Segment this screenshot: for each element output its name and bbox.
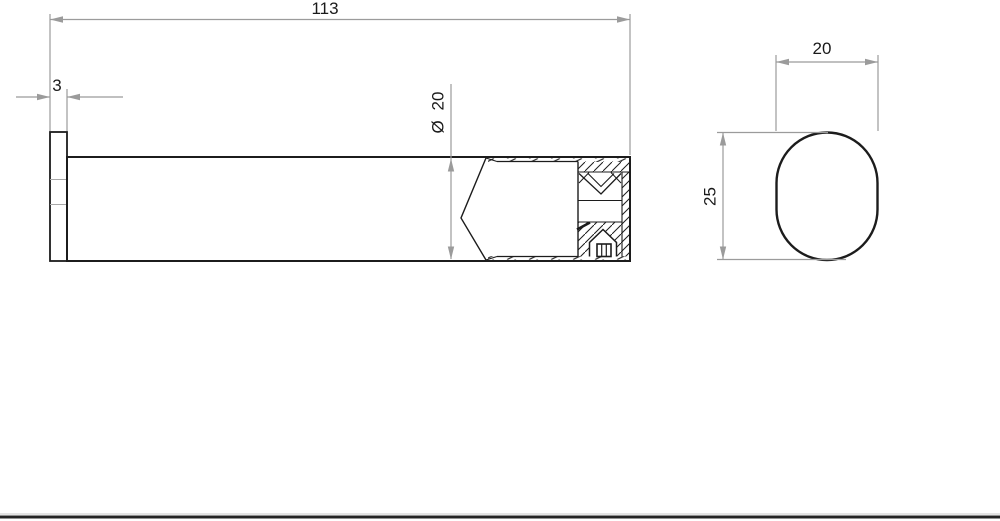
diameter-dim-label: Ø 20 [430, 82, 447, 144]
bottom-rule [0, 514, 1000, 519]
flange-outline [50, 132, 67, 261]
tube-body-outline [67, 157, 630, 261]
width-dim-label: 20 [800, 40, 844, 57]
side-view [777, 133, 878, 261]
front-view [50, 132, 630, 261]
height-dim-label: 25 [702, 175, 719, 219]
cad-linework [0, 0, 1000, 521]
dimension-flange-3 [16, 89, 123, 131]
length-dim-label: 113 [297, 0, 353, 17]
dimension-length-113 [50, 14, 630, 155]
dimension-width-20 [776, 55, 878, 131]
drawing-canvas: 113 3 Ø 20 20 25 [0, 0, 1000, 521]
flange-thickness-dim-label: 3 [44, 77, 70, 94]
obround-outline [777, 133, 878, 261]
